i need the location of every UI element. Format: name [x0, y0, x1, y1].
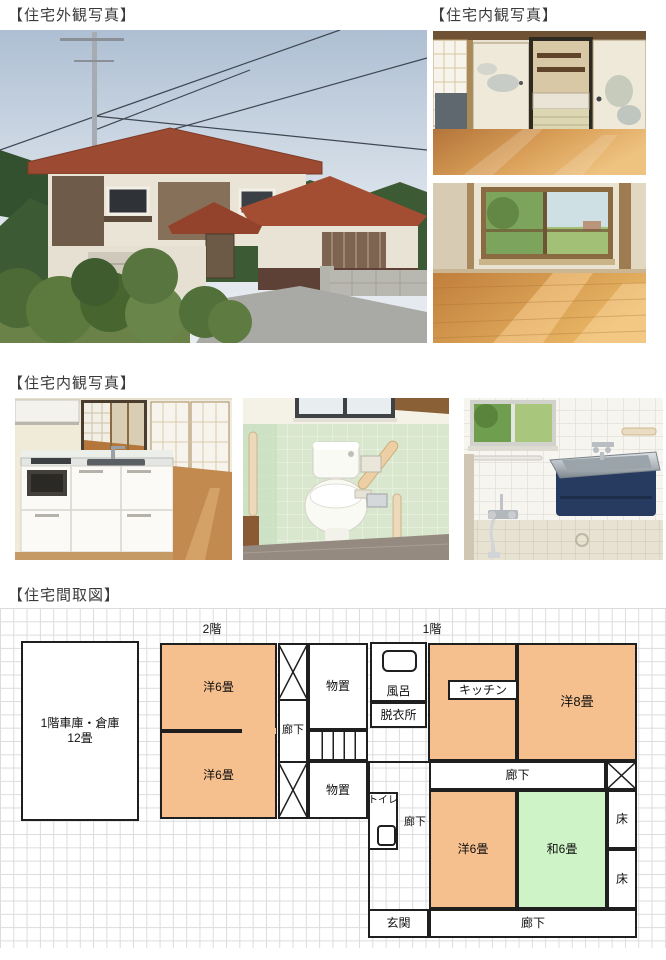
room-japanese6: 和6畳: [517, 790, 607, 909]
tatami-room-opening: [529, 37, 593, 137]
photo-house-exterior: [0, 30, 427, 343]
closet-x-mark: [606, 761, 637, 790]
wood-floor: [433, 129, 646, 175]
window: [479, 187, 615, 265]
closet-x-mark: [278, 761, 308, 819]
kitchen-scene: [15, 398, 232, 560]
room-western8: 洋8畳: [517, 643, 637, 761]
garage-label-line1: 1階車庫・倉庫: [41, 716, 120, 731]
floor-plan: 2階 1階 1階車庫・倉庫 12畳 洋6畳 洋6畳 廊下: [0, 608, 666, 960]
photo-toilet: [243, 398, 449, 560]
corridor-1f-bottom: 廊下: [429, 909, 637, 938]
handrail-left: [249, 432, 257, 516]
photo-tatami-room: [433, 31, 646, 175]
closet-x-mark: [278, 643, 308, 701]
toilet-scene: [243, 398, 449, 560]
handrail: [622, 428, 656, 435]
photo-bathroom: [464, 398, 663, 560]
paper-holder: [367, 494, 387, 507]
room-garage: 1階車庫・倉庫 12畳: [21, 641, 139, 821]
room-kitchen-area: [428, 643, 517, 761]
room-western6-1f: 洋6畳: [429, 790, 517, 909]
kitchen-label-box: キッチン: [448, 680, 518, 700]
photo-kitchen: [15, 398, 232, 560]
wood-floor: [433, 273, 646, 343]
handrail-right: [393, 494, 401, 540]
range-hood: [15, 400, 79, 425]
bathtub-symbol: [382, 650, 417, 672]
property-sheet: 【住宅外観写真】 【住宅内観写真】: [0, 0, 666, 960]
house-exterior-scene: [0, 30, 427, 343]
section-label-exterior: 【住宅外観写真】: [8, 4, 136, 25]
closet-x-2f-b: [278, 761, 308, 819]
room-alcove-a: 床: [607, 790, 637, 849]
fusuma-left: [473, 43, 529, 131]
base-cabinets: [21, 466, 173, 552]
toilet-symbol: [377, 825, 396, 846]
room-western6-2f-a: 洋6畳: [160, 643, 277, 731]
room-dressing: 脱衣所: [370, 702, 427, 728]
western-room-scene: [433, 183, 646, 343]
control-box: [361, 456, 381, 472]
stair-treads: [312, 732, 364, 759]
room-storage-2f-b: 物置: [308, 761, 368, 819]
floor2-heading: 2階: [190, 620, 234, 637]
window: [468, 400, 558, 451]
corridor-1f-top: 廊下: [429, 761, 606, 790]
corridor-1f-side-label: 廊下: [400, 813, 430, 829]
door-opening: [242, 728, 276, 734]
bathroom-scene: [464, 398, 663, 560]
corridor-top-line: [368, 761, 429, 763]
section-label-interior-top: 【住宅内観写真】: [430, 4, 558, 25]
bathtub: [550, 452, 660, 516]
closet-x-1f: [606, 761, 637, 790]
stairs: [308, 730, 368, 761]
corridor-2f: 廊下: [278, 701, 308, 761]
closet-x-2f-a: [278, 643, 308, 701]
room-entrance: 玄関: [368, 909, 429, 938]
tatami-room-scene: [433, 31, 646, 175]
shoji-screen: [433, 40, 473, 140]
photo-western-room: [433, 183, 646, 343]
room-western6-2f-b: 洋6畳: [160, 731, 277, 819]
section-label-floorplan: 【住宅間取図】: [8, 584, 120, 605]
room-storage-2f-a: 物置: [308, 643, 368, 730]
towel-bar: [472, 456, 542, 460]
section-label-interior-mid: 【住宅内観写真】: [8, 372, 136, 393]
door-frame: [464, 454, 474, 560]
garage-label-line2: 12畳: [67, 731, 92, 746]
room-alcove-b: 床: [607, 849, 637, 909]
floor1-heading: 1階: [410, 620, 454, 637]
window: [293, 398, 397, 422]
